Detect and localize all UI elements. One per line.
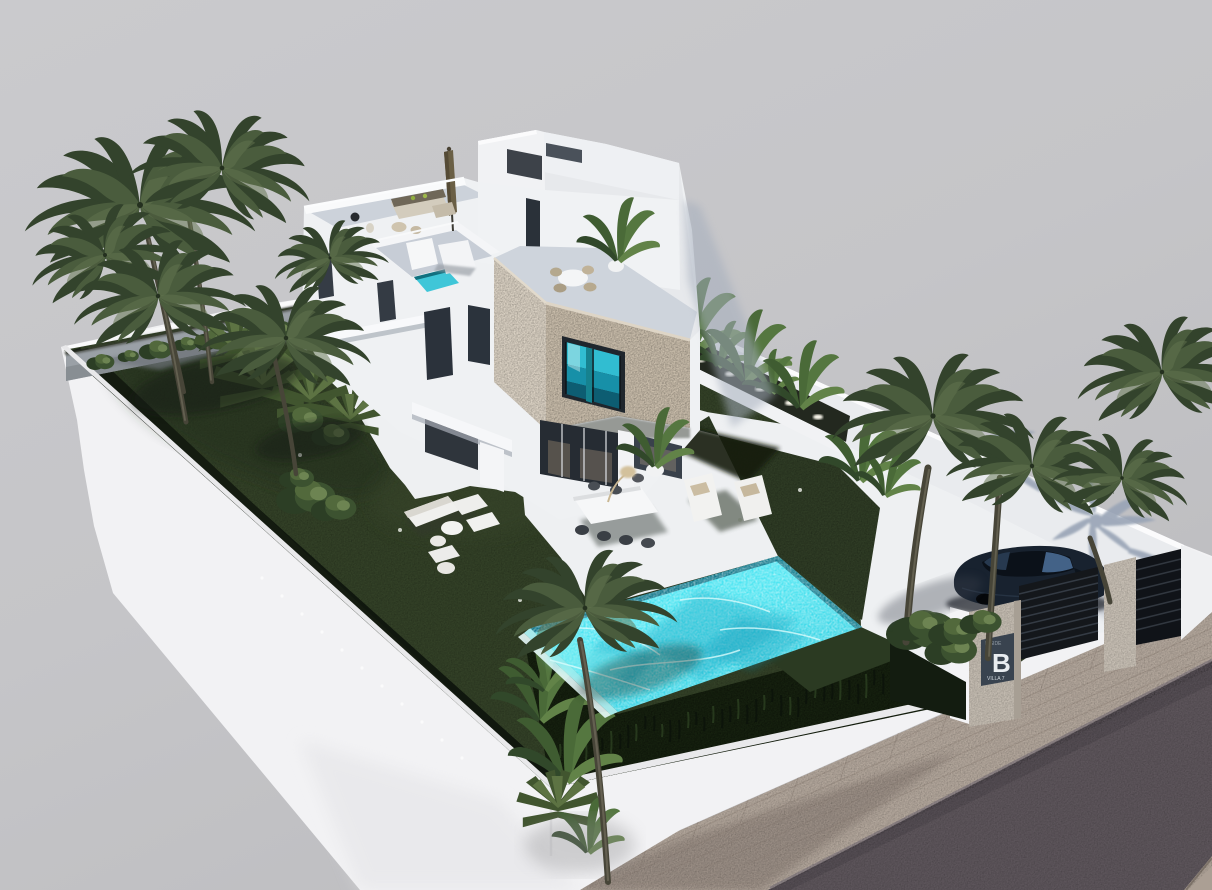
svg-text:VILLA 7: VILLA 7 [987, 676, 1005, 682]
svg-text:B: B [992, 648, 1011, 678]
